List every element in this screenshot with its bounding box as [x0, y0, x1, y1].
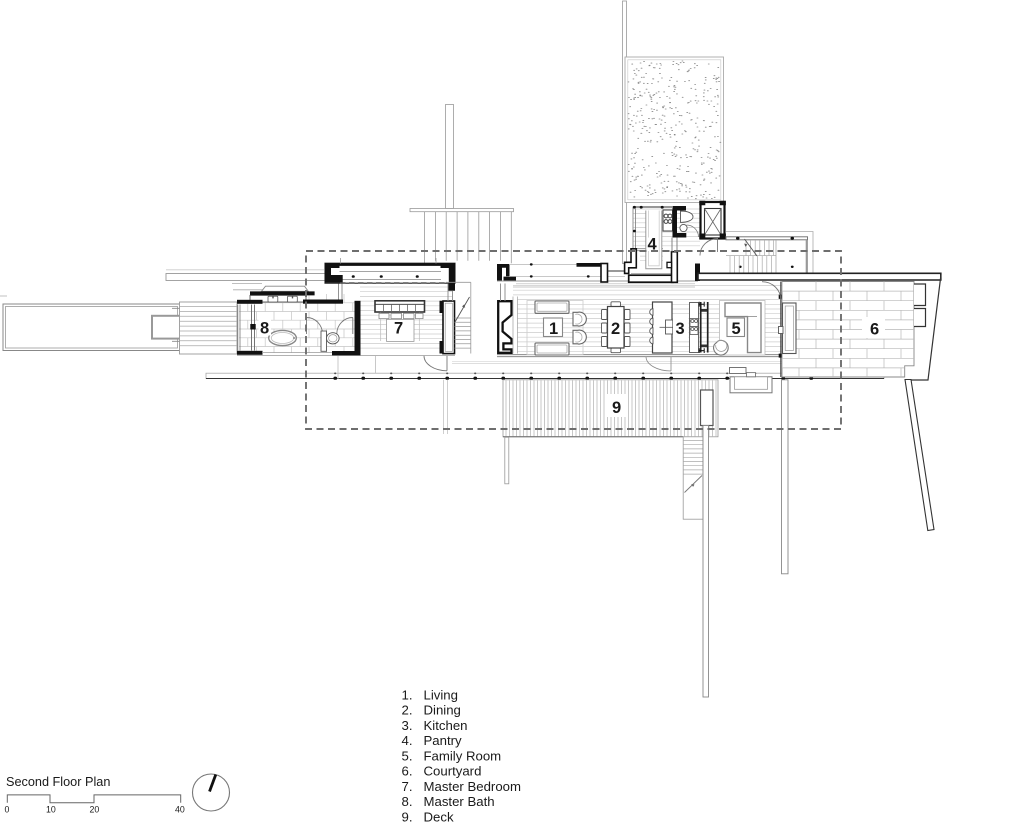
svg-text:Family Room: Family Room [424, 748, 502, 763]
svg-text:9: 9 [612, 399, 621, 417]
svg-text:Master Bedroom: Master Bedroom [424, 779, 521, 794]
svg-text:6.: 6. [402, 764, 413, 779]
svg-text:Dining: Dining [424, 703, 461, 718]
svg-text:7.: 7. [402, 779, 413, 794]
svg-text:1.: 1. [402, 687, 413, 702]
svg-text:0: 0 [5, 805, 10, 815]
svg-text:1: 1 [549, 320, 558, 338]
svg-text:Living: Living [424, 687, 458, 702]
svg-text:7: 7 [394, 320, 403, 338]
svg-text:Kitchen: Kitchen [424, 718, 468, 733]
svg-text:10: 10 [46, 805, 56, 815]
svg-text:Master Bath: Master Bath [424, 794, 495, 809]
svg-text:6: 6 [870, 321, 879, 339]
svg-text:9.: 9. [402, 809, 413, 824]
svg-text:5: 5 [732, 320, 741, 338]
svg-text:2.: 2. [402, 703, 413, 718]
svg-text:20: 20 [90, 805, 100, 815]
svg-text:Courtyard: Courtyard [424, 764, 482, 779]
svg-text:Second Floor Plan: Second Floor Plan [6, 775, 110, 789]
svg-text:8: 8 [260, 320, 269, 338]
svg-text:5.: 5. [402, 748, 413, 763]
svg-text:Pantry: Pantry [424, 733, 463, 748]
svg-text:40: 40 [175, 805, 185, 815]
svg-text:3.: 3. [402, 718, 413, 733]
svg-text:4.: 4. [402, 733, 413, 748]
svg-text:3: 3 [676, 320, 685, 338]
svg-text:Deck: Deck [424, 809, 454, 824]
svg-text:8.: 8. [402, 794, 413, 809]
svg-text:2: 2 [611, 320, 620, 338]
